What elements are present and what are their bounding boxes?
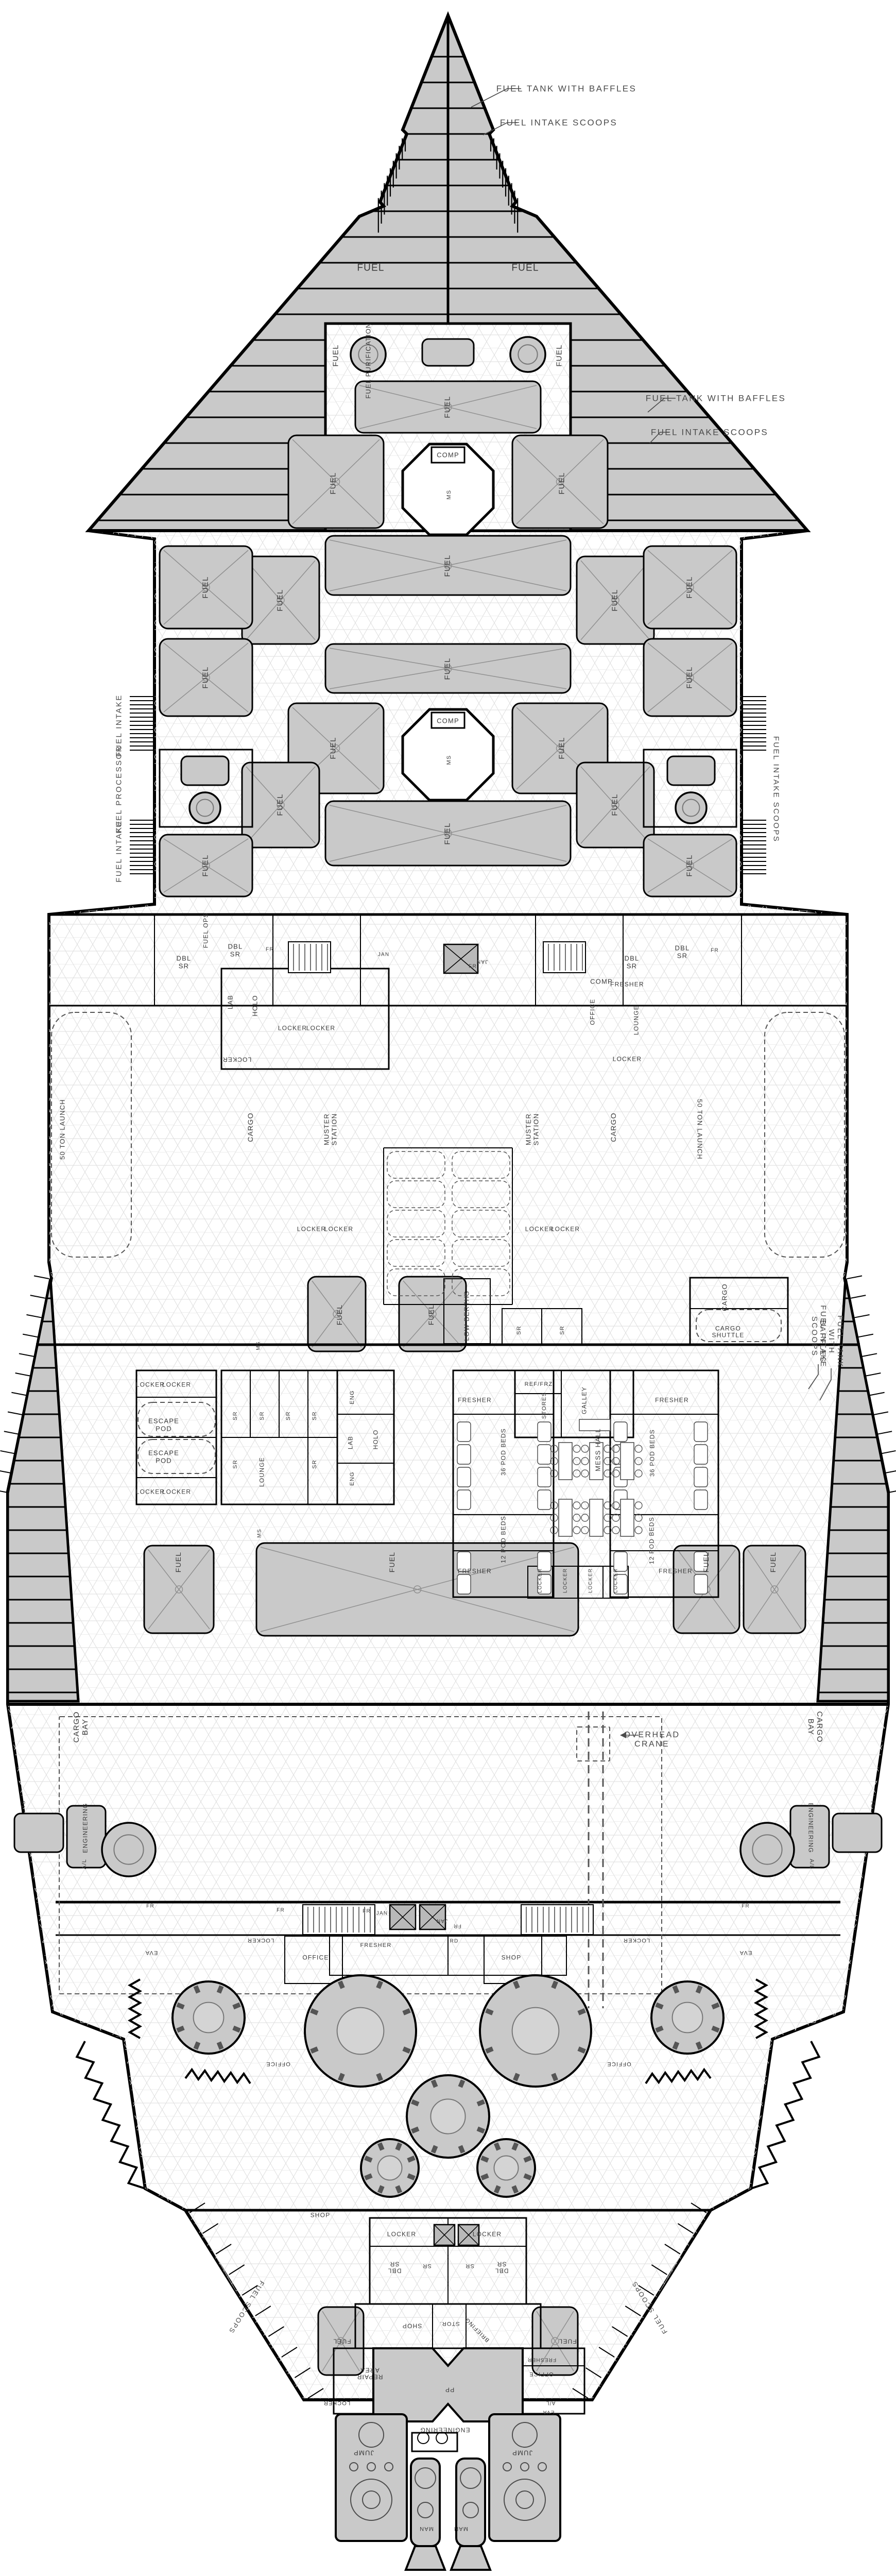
room-label: ENG: [349, 1390, 355, 1404]
room-label: ESCAPE POD: [148, 1449, 179, 1464]
room-label: PP: [445, 2386, 454, 2393]
room-label: LOCKER: [297, 1226, 326, 1232]
annotation-label: FUEL TANK WITH BAFFLES: [496, 83, 637, 93]
room-label: LOCKER: [222, 1056, 252, 1062]
room-label: FUEL: [277, 793, 285, 816]
room-label: FUEL: [686, 854, 695, 876]
room-label: CARGO: [610, 1112, 618, 1142]
room-label: FR: [146, 1903, 154, 1909]
room-label: COMP: [437, 718, 459, 725]
annotation-label: FUEL INTAKE SCOOPS: [771, 736, 780, 843]
room-label: SR: [285, 1411, 291, 1420]
room-label: FUEL: [558, 472, 567, 494]
room-label: FRESHER: [458, 1397, 492, 1403]
room-label: FUEL: [277, 589, 285, 611]
room-label: SHOP: [311, 2212, 331, 2218]
room-label: LOCKER: [162, 1488, 192, 1495]
room-label: FUEL: [611, 589, 620, 611]
room-label: FRESHER: [659, 1568, 693, 1574]
room-label: SR: [312, 1411, 318, 1420]
room-label: FUEL: [444, 396, 453, 418]
room-label: FR: [711, 947, 719, 953]
room-label: DBL SR: [228, 943, 243, 958]
room-label: STOR.: [439, 2320, 459, 2327]
room-label: BRIEFING: [464, 2316, 491, 2343]
room-label: LOCKER: [247, 1937, 274, 1943]
room-label: FUEL: [769, 1552, 778, 1573]
room-label: DBL SR: [625, 955, 640, 970]
room-label: MESS HALL: [595, 1428, 602, 1471]
room-label: MUSTER STATION: [525, 1113, 540, 1146]
room-label: HOLO: [252, 995, 260, 1016]
room-label: LOCKER: [551, 1226, 580, 1232]
annotation-label: FUEL TANK WITH BAFFLES: [646, 393, 786, 403]
room-label: LOCKER: [525, 1226, 555, 1232]
room-label: OFFICE: [266, 2061, 290, 2067]
room-label: LOCKER: [136, 1488, 165, 1495]
room-label: FR: [277, 1907, 285, 1913]
room-label: FUEL: [444, 822, 453, 844]
room-label: FUEL: [330, 737, 338, 759]
room-label: JUMP: [512, 2449, 532, 2456]
room-label: FUEL: [611, 793, 620, 816]
room-label: FUEL OPS: [202, 913, 209, 948]
room-label: OFFICE: [607, 2061, 631, 2067]
room-label: LOCKER: [387, 2231, 417, 2238]
room-label: ENGINEERING: [82, 1803, 89, 1853]
room-label: FRESHER: [527, 2357, 556, 2362]
room-label: FUEL: [333, 2337, 351, 2344]
room-label: 50 TON LAUNCH: [59, 1099, 67, 1160]
room-label: HOLO: [372, 1430, 379, 1450]
annotation-label: FUEL SCOOPS: [227, 2279, 265, 2335]
room-label: LOCKER: [324, 1226, 354, 1232]
room-label: STORES: [541, 1392, 547, 1419]
room-label: LOCKER: [613, 1056, 642, 1062]
room-label: JAN: [376, 1910, 388, 1916]
room-label: SR: [559, 1326, 565, 1335]
room-label: 50 TON LAUNCH: [696, 1099, 703, 1160]
room-label: FUEL: [511, 262, 539, 273]
room-label: ENG: [349, 1471, 355, 1485]
room-label: FUEL: [357, 262, 384, 273]
room-label: LOCKER: [562, 1568, 568, 1593]
room-label: JAN: [378, 952, 390, 957]
room-label: FR: [453, 1923, 461, 1928]
room-label: FRESHER: [655, 1397, 689, 1403]
room-label: MAN: [419, 2526, 434, 2532]
room-label: EVA: [543, 2409, 555, 2415]
room-label: CARGO SHUTTLE: [712, 1326, 744, 1340]
room-label: TS: [21, 1800, 26, 1808]
room-label: JUMP: [353, 2449, 374, 2456]
room-label: FUEL: [686, 666, 695, 688]
annotation-label: FUEL INTAKE SCOOPS: [500, 117, 617, 127]
room-label: LOUNGE: [633, 1005, 640, 1035]
room-label: LOCKER: [323, 2400, 350, 2406]
room-label: SR: [465, 2263, 474, 2269]
room-label: OFFICE: [529, 2371, 554, 2377]
room-label: ESCAPE POD: [148, 1417, 179, 1432]
starship-deck-plan: FUELFUELFUEL PURIFICATIONFUELFUELFUELCOM…: [0, 0, 896, 2576]
room-label: A/L: [546, 2400, 556, 2405]
room-label: SHOP: [502, 1954, 522, 1961]
annotation-label: OVERHEAD CRANE: [624, 1731, 680, 1749]
room-label: FUEL: [388, 1552, 397, 1573]
room-label: MAN: [454, 2526, 468, 2532]
room-label: EVA: [739, 1950, 752, 1956]
room-label: EVA: [145, 1950, 158, 1956]
room-label: 12 POD BEDS: [500, 1516, 507, 1563]
room-label: ENGINEERING: [807, 1803, 814, 1853]
room-label: SR: [232, 1411, 238, 1420]
room-label: LAB: [227, 995, 235, 1009]
room-label: SHOP: [402, 2322, 422, 2329]
room-label: FUEL: [336, 1304, 344, 1326]
room-label: REF/FRZ: [525, 1381, 553, 1387]
annotation-label: FUEL SCOOPS: [630, 2279, 669, 2335]
room-label: LOCKER: [136, 1381, 165, 1388]
room-label: DBL SR: [177, 955, 192, 970]
room-label: COMP: [590, 978, 613, 986]
room-labels-layer: FUELFUELFUEL PURIFICATIONFUELFUELFUELCOM…: [0, 0, 896, 2576]
room-label: MS: [255, 1341, 261, 1350]
room-label: FR: [469, 963, 477, 969]
room-label: FUEL: [556, 344, 564, 366]
room-label: OFFICE: [302, 1954, 329, 1961]
room-label: TS: [869, 1800, 875, 1808]
room-label: JAN: [476, 958, 488, 964]
room-label: FUEL: [686, 576, 695, 598]
room-label: LOCKER: [306, 1025, 336, 1031]
room-label: MUSTER STATION: [323, 1113, 338, 1146]
room-label: SR: [312, 1460, 318, 1469]
room-label: LOCKER: [537, 1568, 543, 1593]
room-label: LOW BERTHS: [463, 1291, 471, 1341]
room-label: LOCKER: [162, 1381, 192, 1388]
room-label: 12 POD BEDS: [648, 1517, 655, 1564]
room-label: ENGINEERING: [420, 2426, 470, 2433]
annotation-label: FUEL TANK WITH BAFFLES: [818, 1309, 844, 1374]
room-label: SR: [422, 2263, 432, 2269]
room-label: 36 POD BEDS: [500, 1428, 507, 1476]
room-label: FUEL: [202, 666, 211, 688]
room-label: COMP: [437, 452, 459, 460]
room-label: FUEL: [202, 576, 211, 598]
room-label: FUEL: [558, 737, 567, 759]
room-label: FRESHER: [360, 1942, 392, 1948]
room-label: LOCKER: [588, 1568, 593, 1593]
room-label: OFFICE: [589, 998, 596, 1025]
room-label: LOUNGE: [259, 1457, 265, 1487]
room-label: CARGO BAY: [73, 1711, 90, 1742]
room-label: SR: [232, 1460, 238, 1469]
room-label: FR: [266, 946, 274, 952]
room-label: CARGO: [247, 1112, 255, 1142]
room-label: A/L: [81, 1859, 88, 1869]
room-label: SR: [259, 1411, 265, 1420]
room-label: FUEL: [558, 2337, 576, 2344]
room-label: FUEL: [427, 1304, 436, 1326]
room-label: MS: [446, 490, 452, 500]
room-label: FUEL: [444, 657, 453, 680]
room-label: CARGO BAY: [806, 1711, 823, 1742]
room-label: LOCKER: [613, 1568, 618, 1593]
room-label: DBL SR: [388, 2260, 402, 2274]
room-label: DBL SR: [495, 2260, 509, 2274]
room-label: RD: [450, 1938, 459, 1944]
room-label: 36 POD BEDS: [649, 1429, 656, 1477]
room-label: CARGO: [721, 1283, 729, 1311]
room-label: FR: [363, 1908, 371, 1914]
room-label: LOCKER: [278, 1025, 307, 1031]
room-label: FR: [742, 1903, 750, 1909]
room-label: LOCKER: [623, 1937, 650, 1943]
room-label: LOCKER: [473, 2231, 502, 2238]
room-label: MS: [446, 755, 452, 765]
room-label: SR: [516, 1326, 522, 1335]
room-label: FUEL: [202, 854, 211, 876]
room-label: FUEL: [332, 344, 341, 366]
room-label: FUEL: [330, 472, 338, 494]
room-label: FUEL: [702, 1552, 711, 1573]
room-label: FUEL PURIFICATION: [365, 323, 373, 399]
room-label: LAB: [347, 1436, 354, 1449]
annotation-label: FUEL INTAKE: [115, 820, 124, 882]
room-label: FUEL: [175, 1552, 183, 1573]
room-label: FRESHER: [610, 981, 644, 988]
annotation-label: FUEL INTAKE SCOOPS: [651, 427, 768, 437]
room-label: DBL SR: [675, 944, 690, 959]
room-label: JAN: [436, 1918, 448, 1923]
room-label: MS: [256, 1529, 262, 1537]
room-label: A/L: [808, 1859, 815, 1869]
room-label: FUEL: [444, 554, 453, 577]
room-label: FRESHER: [458, 1568, 492, 1574]
room-label: REPAIR AREA: [357, 2366, 383, 2380]
room-label: GALLEY: [581, 1386, 588, 1414]
